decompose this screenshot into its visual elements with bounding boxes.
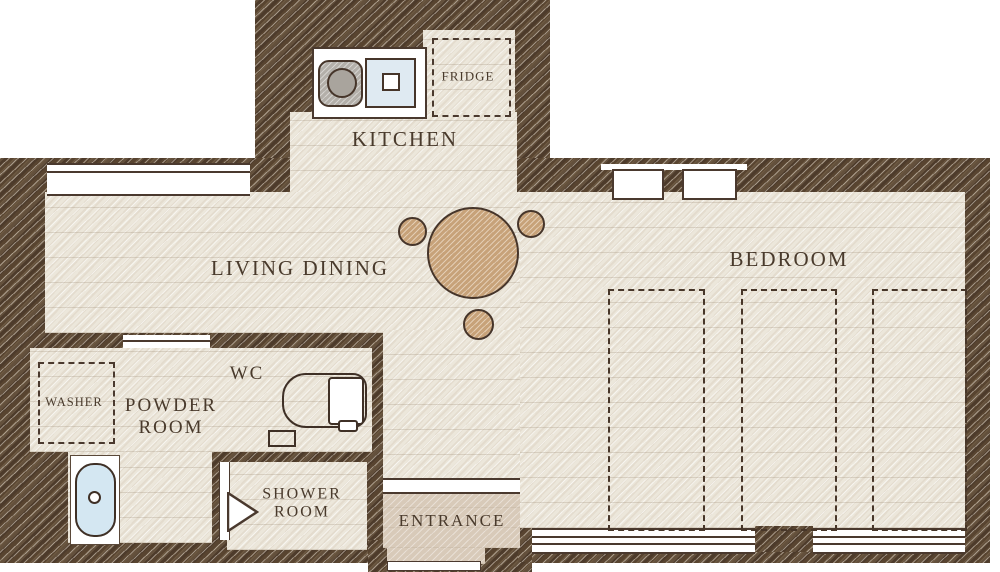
entrance-corridor-floor <box>383 330 520 480</box>
shower-room-line2: ROOM <box>274 504 330 521</box>
shower-room-label: SHOWER ROOM <box>262 486 342 523</box>
sink-drain-icon <box>382 73 400 91</box>
bedroom-sliding-window-1 <box>532 528 755 554</box>
toilet-control-box <box>268 430 296 447</box>
chair <box>517 210 545 238</box>
door-track <box>123 340 210 342</box>
bedroom-sliding-window-2 <box>813 528 965 554</box>
window-rail <box>813 536 965 538</box>
wc-label: WC <box>230 363 265 385</box>
shower-door-swing-icon <box>227 492 259 532</box>
bathtub-drain-icon <box>88 491 101 504</box>
window-rail <box>532 543 755 545</box>
powder-room-door <box>123 335 210 348</box>
bedroom-window-2 <box>682 169 737 200</box>
powder-room-label: POWDER ROOM <box>125 395 217 439</box>
entrance-step-strip <box>383 478 520 494</box>
toilet-tank <box>328 377 364 425</box>
stove-burner-icon <box>327 68 357 98</box>
floor-plan-canvas: KITCHEN FRIDGE LIVING DINING BEDROOM WC … <box>0 0 1000 572</box>
shower-room-line1: SHOWER <box>262 486 342 503</box>
kitchen-label: KITCHEN <box>352 127 458 151</box>
kitchen-floor <box>290 112 517 196</box>
living-dining-label: LIVING DINING <box>211 256 389 280</box>
powder-room-line2: ROOM <box>138 417 203 438</box>
washer-label: WASHER <box>45 395 102 409</box>
living-window-mullion <box>47 171 250 173</box>
living-window <box>47 163 250 196</box>
powder-room-line1: POWDER <box>125 395 217 416</box>
entrance-label: ENTRANCE <box>399 511 506 531</box>
chair <box>463 309 494 340</box>
entrance-outer-step <box>387 561 481 571</box>
bed-outline <box>741 289 837 531</box>
window-rail <box>813 543 965 545</box>
chair <box>398 217 427 246</box>
toilet-foot <box>338 420 358 432</box>
bed-outline <box>608 289 705 531</box>
bedroom-label: BEDROOM <box>729 247 848 271</box>
bed-outline <box>872 289 967 531</box>
dining-table <box>427 207 519 299</box>
bedroom-window-1 <box>612 169 664 200</box>
window-rail <box>532 536 755 538</box>
fridge-label: FRIDGE <box>442 70 495 85</box>
